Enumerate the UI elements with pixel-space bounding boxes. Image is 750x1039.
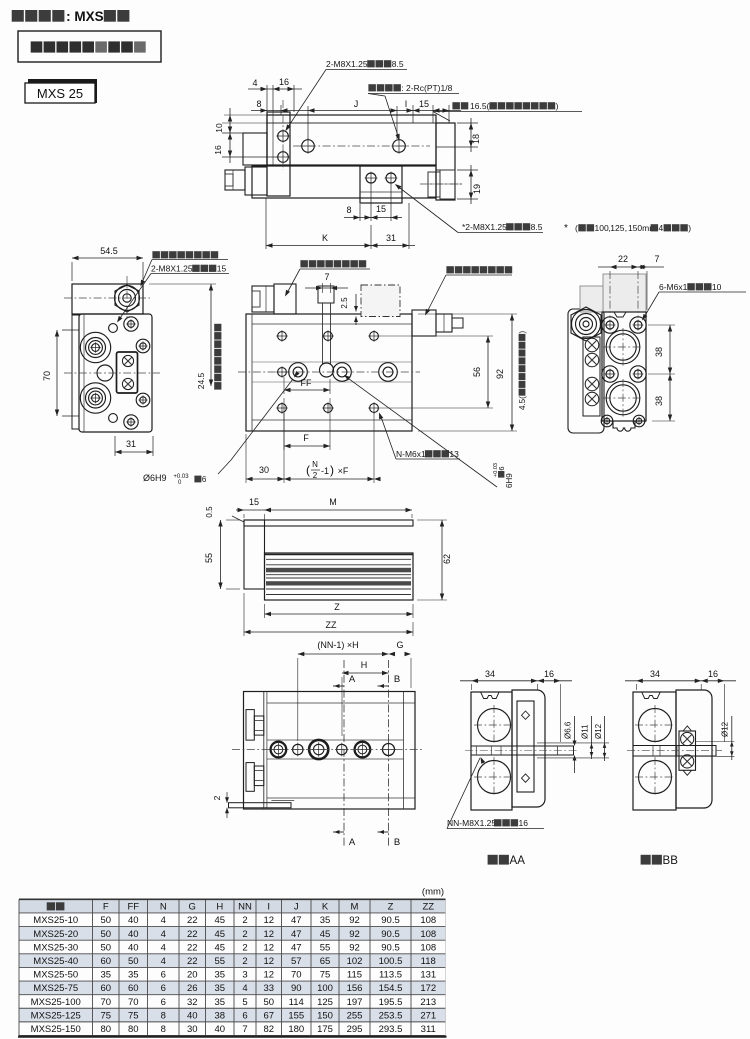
svg-text:BB: BB xyxy=(663,855,679,867)
svg-text:K: K xyxy=(322,233,328,243)
svg-text:G: G xyxy=(189,902,196,913)
svg-text:MXS25-150: MXS25-150 xyxy=(31,1024,81,1035)
svg-text:MXS25-125: MXS25-125 xyxy=(31,1010,81,1021)
svg-text:60: 60 xyxy=(100,956,111,967)
svg-text:×F: ×F xyxy=(338,466,349,476)
svg-text:10: 10 xyxy=(712,282,722,292)
svg-text:8: 8 xyxy=(161,1010,166,1021)
svg-text:75: 75 xyxy=(320,970,331,981)
svg-text:MXS25-75: MXS25-75 xyxy=(33,983,78,994)
svg-text:60: 60 xyxy=(100,983,111,994)
svg-text:4: 4 xyxy=(242,983,247,994)
svg-text:6: 6 xyxy=(161,970,166,981)
svg-text:75: 75 xyxy=(100,1010,111,1021)
svg-text:6: 6 xyxy=(242,1010,247,1021)
svg-text:15: 15 xyxy=(249,497,259,507)
svg-text:62: 62 xyxy=(442,554,452,564)
svg-text:253.5: 253.5 xyxy=(379,1010,403,1021)
svg-text:65: 65 xyxy=(320,956,331,967)
svg-text:Ø11: Ø11 xyxy=(581,724,590,739)
svg-text:38: 38 xyxy=(214,1010,225,1021)
svg-text:Ø12: Ø12 xyxy=(594,723,603,739)
svg-text:26: 26 xyxy=(187,983,198,994)
svg-text:75: 75 xyxy=(128,1010,139,1021)
svg-text:40: 40 xyxy=(128,915,139,926)
svg-text:34: 34 xyxy=(650,669,660,679)
svg-text:NN-M8X1.25: NN-M8X1.25 xyxy=(447,818,496,828)
svg-text:6: 6 xyxy=(161,983,166,994)
svg-text:35: 35 xyxy=(214,983,225,994)
svg-text:92: 92 xyxy=(495,369,505,379)
svg-text:45: 45 xyxy=(214,929,225,940)
svg-text:J: J xyxy=(294,902,299,913)
svg-text:(: ( xyxy=(306,463,310,477)
svg-text:156: 156 xyxy=(347,983,363,994)
svg-text:(: ( xyxy=(575,223,578,233)
svg-text:*: * xyxy=(564,223,568,234)
svg-text:MXS25-100: MXS25-100 xyxy=(31,997,81,1008)
svg-text:MXS25-40: MXS25-40 xyxy=(33,956,78,967)
svg-text:NN: NN xyxy=(238,902,252,913)
svg-text:16: 16 xyxy=(544,669,554,679)
svg-text:2-M8X1.25: 2-M8X1.25 xyxy=(326,59,368,69)
svg-text:4: 4 xyxy=(252,78,257,88)
svg-text:271: 271 xyxy=(420,1010,436,1021)
svg-text:35: 35 xyxy=(320,915,331,926)
svg-text:90.5: 90.5 xyxy=(381,915,400,926)
svg-text:Ø6.6: Ø6.6 xyxy=(564,721,573,739)
svg-text:92: 92 xyxy=(349,929,360,940)
svg-text:H: H xyxy=(361,660,368,670)
svg-text:8: 8 xyxy=(161,1024,166,1035)
svg-text:22: 22 xyxy=(187,915,198,926)
svg-text:35: 35 xyxy=(128,970,139,981)
svg-text:57: 57 xyxy=(291,956,302,967)
svg-text:293.5: 293.5 xyxy=(379,1024,403,1035)
svg-text:Z: Z xyxy=(388,902,394,913)
svg-text:18: 18 xyxy=(471,134,481,144)
svg-text:197: 197 xyxy=(347,997,363,1008)
svg-text:100: 100 xyxy=(317,983,333,994)
svg-text:MXS25-50: MXS25-50 xyxy=(33,970,78,981)
svg-text:A: A xyxy=(349,837,356,848)
svg-text:AA: AA xyxy=(510,855,526,867)
svg-text:Z: Z xyxy=(334,602,340,612)
svg-text:40: 40 xyxy=(128,929,139,940)
svg-text:F: F xyxy=(303,433,309,443)
svg-text:I: I xyxy=(267,902,270,913)
svg-text:: MXS: : MXS xyxy=(66,9,104,24)
svg-text:175: 175 xyxy=(317,1024,333,1035)
svg-text:): ) xyxy=(688,223,691,233)
svg-text:50: 50 xyxy=(100,915,111,926)
svg-text:92: 92 xyxy=(349,915,360,926)
svg-text:8.5: 8.5 xyxy=(531,222,543,232)
svg-text:2: 2 xyxy=(242,929,247,940)
svg-text:15: 15 xyxy=(419,99,429,109)
svg-text:90: 90 xyxy=(291,983,302,994)
svg-text:,: , xyxy=(625,223,627,233)
svg-text:0.5: 0.5 xyxy=(205,506,214,518)
svg-text:60: 60 xyxy=(128,983,139,994)
svg-text:255: 255 xyxy=(347,1010,363,1021)
svg-text:32: 32 xyxy=(187,997,198,1008)
svg-text:2: 2 xyxy=(242,942,247,953)
svg-text:2: 2 xyxy=(242,915,247,926)
svg-text:50: 50 xyxy=(100,929,111,940)
svg-text:31: 31 xyxy=(386,233,396,243)
svg-text:-1: -1 xyxy=(321,466,329,476)
svg-text:47: 47 xyxy=(291,929,302,940)
svg-text:114: 114 xyxy=(289,997,304,1008)
svg-text:150: 150 xyxy=(317,1010,333,1021)
svg-text:155: 155 xyxy=(288,1010,304,1021)
svg-text:6: 6 xyxy=(202,475,207,484)
svg-text:3: 3 xyxy=(242,970,247,981)
svg-text:4: 4 xyxy=(658,223,663,233)
svg-text:70: 70 xyxy=(128,997,139,1008)
svg-text:22: 22 xyxy=(187,929,198,940)
svg-text:90.5: 90.5 xyxy=(381,942,400,953)
svg-text:35: 35 xyxy=(214,997,225,1008)
svg-text:100.5: 100.5 xyxy=(379,956,403,967)
svg-text:4: 4 xyxy=(161,956,166,967)
svg-text:8.5: 8.5 xyxy=(392,59,404,69)
svg-text:MXS 25: MXS 25 xyxy=(37,86,83,101)
svg-text:20: 20 xyxy=(187,970,198,981)
svg-text:(NN-1) ×H: (NN-1) ×H xyxy=(317,640,358,650)
svg-text:80: 80 xyxy=(128,1024,139,1035)
svg-text:16: 16 xyxy=(519,818,529,828)
svg-text:108: 108 xyxy=(420,915,436,926)
svg-text:55: 55 xyxy=(214,956,225,967)
svg-text:35: 35 xyxy=(100,970,111,981)
svg-text:15: 15 xyxy=(376,204,386,214)
svg-text:90.5: 90.5 xyxy=(381,929,400,940)
svg-text:108: 108 xyxy=(420,942,436,953)
svg-text:N-M6x1: N-M6x1 xyxy=(396,449,426,459)
svg-text:108: 108 xyxy=(420,929,436,940)
svg-text:22: 22 xyxy=(187,956,198,967)
svg-text:16: 16 xyxy=(279,77,289,87)
svg-text:I: I xyxy=(405,99,408,109)
svg-text:2.5: 2.5 xyxy=(340,297,349,309)
svg-text:MXS25-10: MXS25-10 xyxy=(33,915,78,926)
svg-text:125: 125 xyxy=(610,223,624,233)
svg-text:55: 55 xyxy=(320,942,331,953)
svg-text:24.5: 24.5 xyxy=(196,372,206,389)
svg-text:30: 30 xyxy=(187,1024,198,1035)
svg-text:70: 70 xyxy=(42,371,52,381)
svg-text:54.5: 54.5 xyxy=(100,246,118,256)
svg-text:FF: FF xyxy=(301,378,312,388)
svg-text:19: 19 xyxy=(472,184,482,194)
svg-text:6-M6x1: 6-M6x1 xyxy=(659,282,688,292)
svg-text:N: N xyxy=(312,460,318,469)
svg-text:K: K xyxy=(322,902,329,913)
svg-text:45: 45 xyxy=(214,915,225,926)
svg-text:311: 311 xyxy=(421,1024,436,1035)
svg-text:131: 131 xyxy=(420,970,436,981)
svg-text:50: 50 xyxy=(100,942,111,953)
svg-text:16.5(: 16.5( xyxy=(470,101,490,111)
svg-text:35: 35 xyxy=(214,970,225,981)
svg-text:67: 67 xyxy=(263,1010,274,1021)
svg-text:70: 70 xyxy=(291,970,302,981)
svg-text:213: 213 xyxy=(420,997,436,1008)
svg-text:12: 12 xyxy=(263,929,274,940)
svg-text:B: B xyxy=(394,837,400,848)
svg-text:12: 12 xyxy=(263,956,274,967)
svg-text:38: 38 xyxy=(654,396,664,406)
svg-text:): ) xyxy=(330,463,334,477)
svg-text:8: 8 xyxy=(346,205,351,215)
svg-text:92: 92 xyxy=(349,942,360,953)
svg-text:50: 50 xyxy=(263,997,274,1008)
svg-text:16: 16 xyxy=(708,669,718,679)
svg-text:125: 125 xyxy=(317,997,333,1008)
svg-text:34: 34 xyxy=(485,669,495,679)
svg-text:82: 82 xyxy=(263,1024,274,1035)
svg-text:22: 22 xyxy=(187,942,198,953)
svg-text:295: 295 xyxy=(347,1024,363,1035)
svg-text:55: 55 xyxy=(204,553,214,563)
svg-text:40: 40 xyxy=(187,1010,198,1021)
svg-text:4: 4 xyxy=(161,942,166,953)
svg-text:40: 40 xyxy=(128,942,139,953)
svg-text:172: 172 xyxy=(420,983,436,994)
svg-text:15: 15 xyxy=(217,264,227,274)
svg-text:B: B xyxy=(394,674,400,685)
svg-text:22: 22 xyxy=(618,254,628,264)
svg-text:7: 7 xyxy=(654,254,659,264)
svg-text:G: G xyxy=(396,640,403,650)
svg-text:50: 50 xyxy=(128,956,139,967)
svg-text:MXS25-30: MXS25-30 xyxy=(33,942,78,953)
svg-text:ZZ: ZZ xyxy=(422,902,434,913)
svg-text:31: 31 xyxy=(126,439,136,449)
svg-text:4: 4 xyxy=(161,915,166,926)
svg-text:Ø6H9: Ø6H9 xyxy=(143,473,167,483)
svg-text:45: 45 xyxy=(214,942,225,953)
svg-text:A: A xyxy=(349,674,356,685)
svg-text:7: 7 xyxy=(324,272,329,282)
svg-text:12: 12 xyxy=(263,942,274,953)
svg-text:154.5: 154.5 xyxy=(379,983,403,994)
svg-text:F: F xyxy=(103,902,109,913)
svg-text:30: 30 xyxy=(259,465,269,475)
svg-text:): ) xyxy=(518,330,527,333)
svg-text:180: 180 xyxy=(288,1024,304,1035)
svg-text:N: N xyxy=(160,902,167,913)
svg-text:FF: FF xyxy=(127,902,139,913)
svg-text:195.5: 195.5 xyxy=(379,997,403,1008)
svg-text:4: 4 xyxy=(161,929,166,940)
svg-text:7: 7 xyxy=(242,1024,247,1035)
svg-text:2: 2 xyxy=(242,956,247,967)
svg-text:(mm): (mm) xyxy=(422,887,444,898)
svg-text:+0.03: +0.03 xyxy=(493,463,499,477)
svg-text:113.5: 113.5 xyxy=(379,970,402,981)
svg-text:4.5(: 4.5( xyxy=(518,396,527,410)
svg-text:6: 6 xyxy=(161,997,166,1008)
svg-text:2: 2 xyxy=(313,471,318,480)
svg-text:Ø12: Ø12 xyxy=(721,721,730,737)
svg-text:M: M xyxy=(351,902,359,913)
svg-text:118: 118 xyxy=(421,956,436,967)
svg-text:12: 12 xyxy=(263,970,274,981)
svg-text:45: 45 xyxy=(320,929,331,940)
svg-text:70: 70 xyxy=(100,997,111,1008)
svg-text:33: 33 xyxy=(263,983,274,994)
svg-text:): ) xyxy=(556,101,559,111)
svg-text:47: 47 xyxy=(291,915,302,926)
svg-text:ZZ: ZZ xyxy=(326,620,337,630)
svg-text:100: 100 xyxy=(595,223,609,233)
svg-text:*2-M8X1.25: *2-M8X1.25 xyxy=(462,222,507,232)
svg-text:M: M xyxy=(329,497,337,507)
svg-text:J: J xyxy=(354,99,359,109)
svg-text:10: 10 xyxy=(214,123,224,133)
svg-text:115: 115 xyxy=(347,970,362,981)
svg-text:6H9: 6H9 xyxy=(505,473,514,488)
svg-text:12: 12 xyxy=(263,915,274,926)
svg-text:16: 16 xyxy=(213,145,223,155)
svg-text:38: 38 xyxy=(654,347,664,357)
svg-text:56: 56 xyxy=(472,367,482,377)
svg-text:80: 80 xyxy=(100,1024,111,1035)
svg-text:13: 13 xyxy=(449,449,459,459)
svg-text:40: 40 xyxy=(214,1024,225,1035)
svg-text:H: H xyxy=(216,902,223,913)
svg-text:2-M8X1.25: 2-M8X1.25 xyxy=(151,264,193,274)
svg-text:8: 8 xyxy=(256,99,261,109)
svg-text:5: 5 xyxy=(242,997,247,1008)
svg-text:2: 2 xyxy=(212,795,222,800)
svg-text:: 2-Rc(PT)1/8: : 2-Rc(PT)1/8 xyxy=(401,83,452,93)
svg-text:102: 102 xyxy=(347,956,363,967)
svg-text:47: 47 xyxy=(291,942,302,953)
svg-text:MXS25-20: MXS25-20 xyxy=(33,929,78,940)
